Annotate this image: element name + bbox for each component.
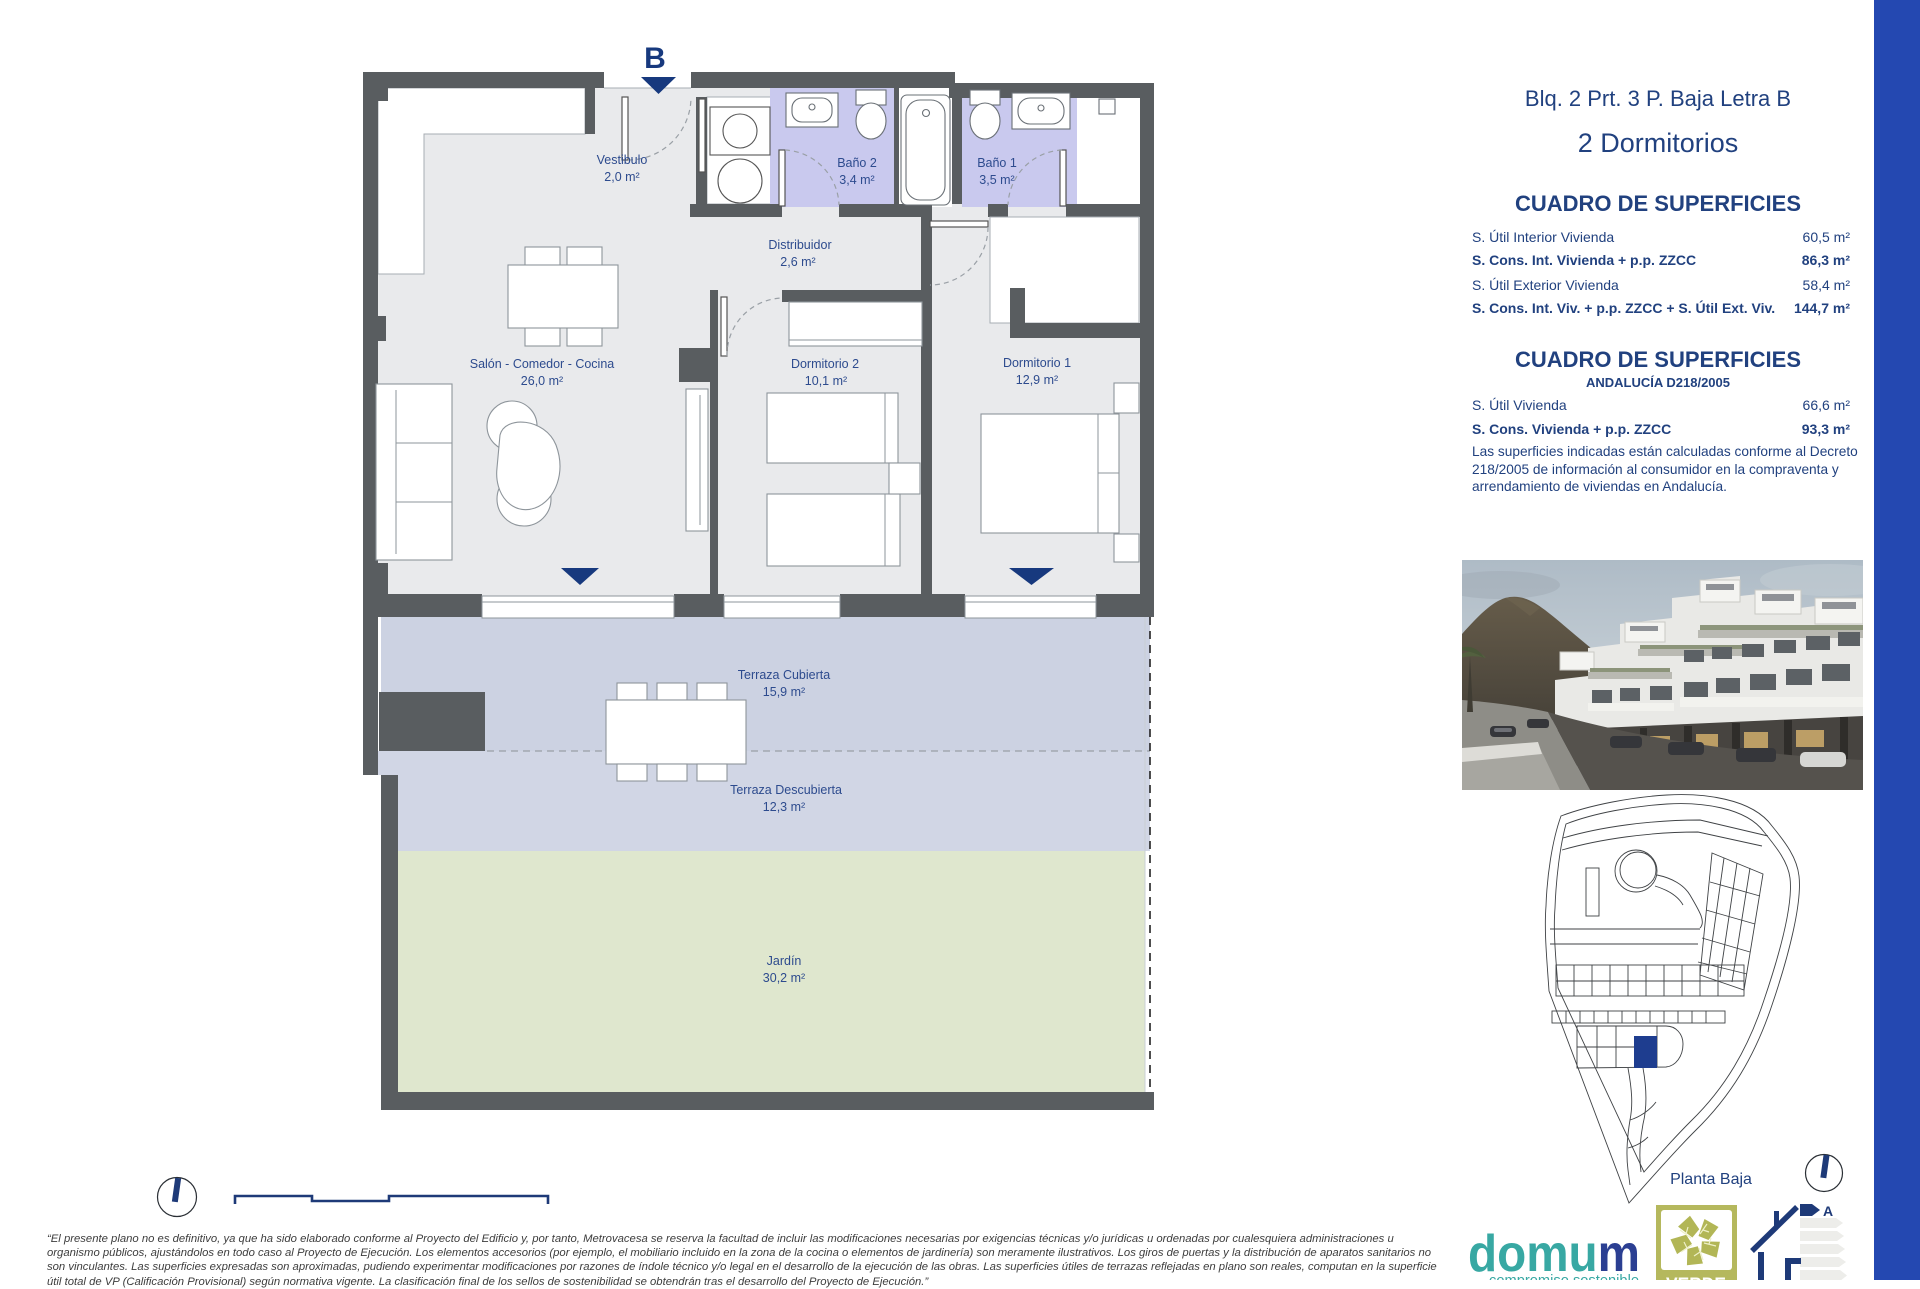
svg-text:Terraza Descubierta: Terraza Descubierta <box>730 783 842 797</box>
svg-text:VERDE: VERDE <box>1666 1275 1726 1280</box>
svg-text:compromiso sostenible: compromiso sostenible <box>1489 1273 1639 1280</box>
svg-text:26,0 m²: 26,0 m² <box>521 374 563 388</box>
svg-text:2,6 m²: 2,6 m² <box>780 255 815 269</box>
svg-text:Salón - Comedor - Cocina: Salón - Comedor - Cocina <box>470 357 615 371</box>
svg-text:B: B <box>644 42 666 75</box>
svg-text:12,9 m²: 12,9 m² <box>1016 373 1058 387</box>
svg-text:Vestibulo: Vestibulo <box>597 153 648 167</box>
svg-text:Distribuidor: Distribuidor <box>768 238 831 252</box>
svg-text:15,9 m²: 15,9 m² <box>763 685 805 699</box>
svg-text:10,1 m²: 10,1 m² <box>805 374 847 388</box>
svg-text:Terraza Cubierta: Terraza Cubierta <box>738 668 830 682</box>
svg-text:Dormitorio 2: Dormitorio 2 <box>791 357 859 371</box>
svg-text:Baño 1: Baño 1 <box>977 156 1017 170</box>
svg-text:A: A <box>1823 1203 1833 1219</box>
svg-text:Dormitorio 1: Dormitorio 1 <box>1003 356 1071 370</box>
svg-text:3,4 m²: 3,4 m² <box>839 173 874 187</box>
svg-text:30,2 m²: 30,2 m² <box>763 971 805 985</box>
svg-text:Jardín: Jardín <box>767 954 802 968</box>
svg-text:Baño 2: Baño 2 <box>837 156 877 170</box>
svg-text:12,3 m²: 12,3 m² <box>763 800 805 814</box>
svg-text:3,5 m²: 3,5 m² <box>979 173 1014 187</box>
svg-text:2,0 m²: 2,0 m² <box>604 170 639 184</box>
svg-text:domum: domum <box>1468 1225 1640 1280</box>
